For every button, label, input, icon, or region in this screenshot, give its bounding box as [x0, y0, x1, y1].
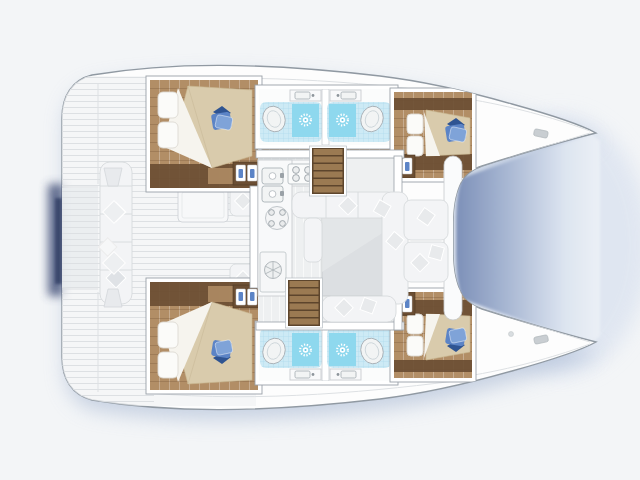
cockpit-table — [178, 188, 228, 222]
stern-recess-shadow-core — [55, 198, 62, 284]
catamaran-floorplan: catamaran floor plan — [0, 0, 640, 480]
round-hob — [266, 207, 289, 230]
bench-pillow — [428, 245, 444, 261]
floorplan-stage: catamaran floor plan — [0, 0, 640, 480]
sofa-bench — [322, 296, 396, 322]
salon-wall-aft — [250, 186, 258, 288]
stairs-port: companionway stairs to hull — [310, 146, 347, 196]
deck-fitting — [509, 332, 514, 337]
sofa-bench — [304, 218, 322, 262]
salon-wall-bottom — [256, 322, 404, 330]
stairs-starboard: companionway stairs to hull — [286, 278, 323, 328]
faucet — [280, 173, 284, 178]
faucet — [280, 191, 284, 196]
salon: salon with galley and dining table galle… — [250, 146, 408, 330]
